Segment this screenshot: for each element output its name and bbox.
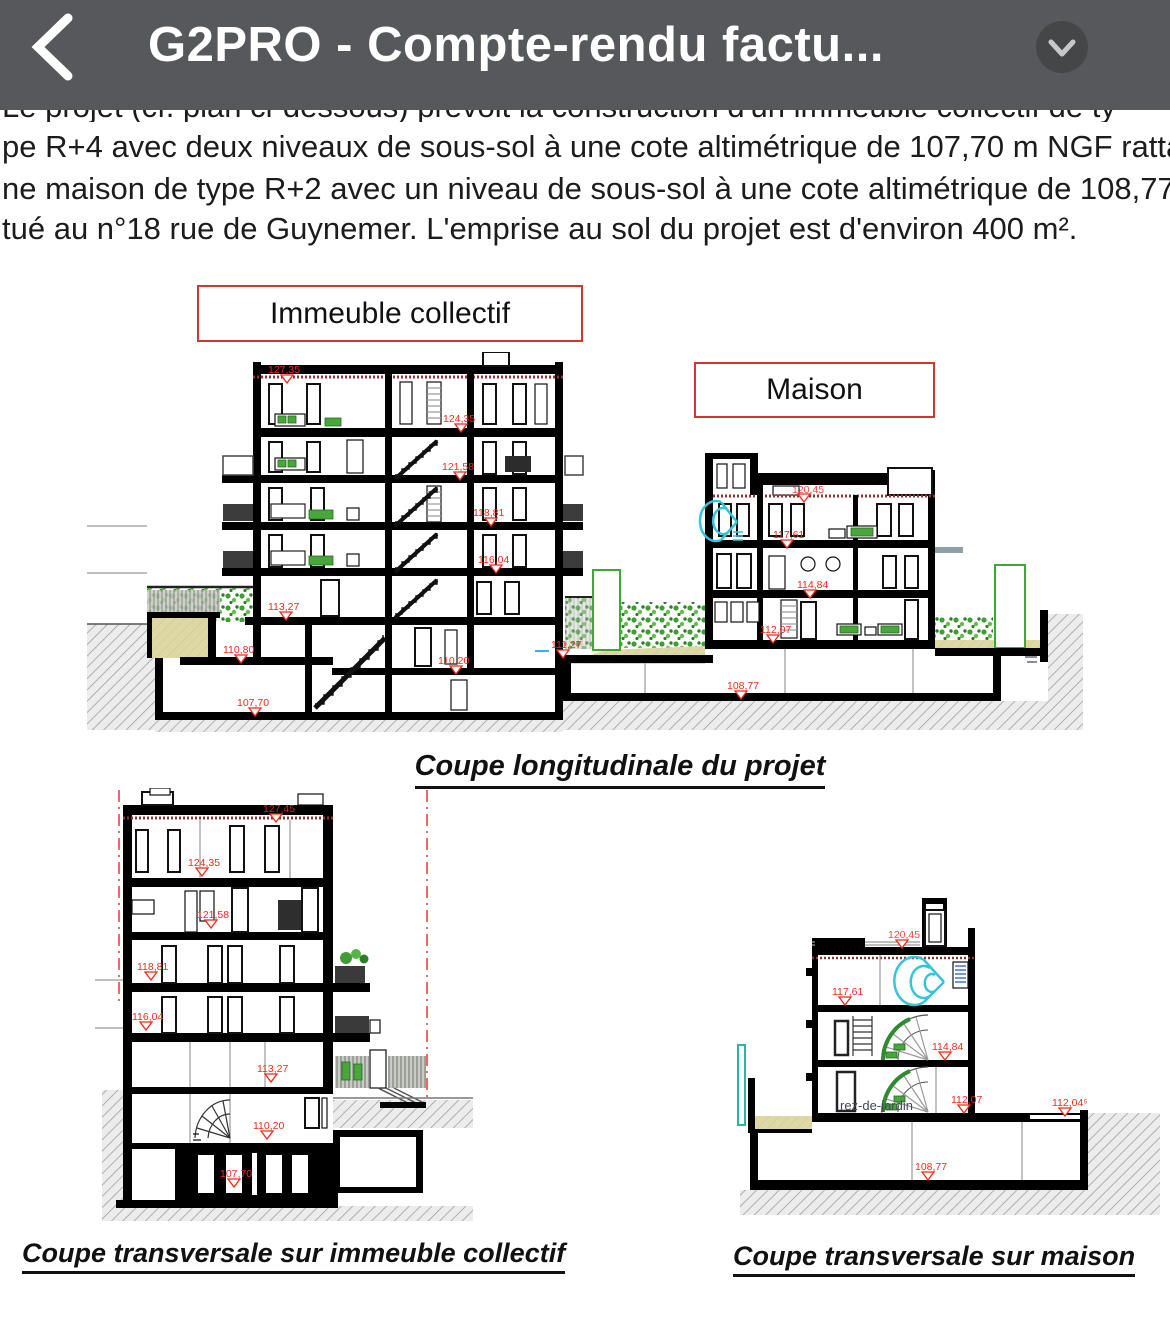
- label-immeuble-text: Immeuble collectif: [270, 297, 510, 331]
- paragraph-line-3: tué au n°18 rue de Guynemer. L'emprise a…: [2, 211, 1170, 247]
- elevation-label: 112,04⁵: [1052, 1097, 1088, 1109]
- document-viewer-screen: G2PRO - Compte-rendu factu... Le projet …: [0, 0, 1170, 1328]
- elevation-label: 117,61: [773, 529, 804, 541]
- elevation-label: 116,04: [132, 1011, 163, 1023]
- tm-spiral-stair-cyan: [894, 957, 944, 1005]
- room-label: rez-de-jardin: [840, 1098, 913, 1113]
- ti-windows: [132, 820, 327, 1143]
- caption-transversale-immeuble: Coupe transversale sur immeuble collecti…: [22, 1238, 565, 1269]
- clipped-paragraph-line: Le projet (cf. plan ci-dessous) prévoit …: [2, 110, 1170, 122]
- elevation-label: 107,70: [237, 697, 269, 709]
- elevation-label: 114,84: [797, 579, 828, 591]
- elevation-label: 121,58: [442, 461, 474, 473]
- longitudinal-section-drawing: 127,35 124,35 121,58 118,81 116,04 113,2…: [85, 352, 1085, 737]
- chevron-down-icon: [1051, 42, 1073, 54]
- elevation-label: 118,81: [473, 507, 504, 519]
- paragraph-line-2: ne maison de type R+2 avec un niveau de …: [2, 171, 1170, 207]
- back-chevron-icon: [38, 18, 68, 76]
- elevation-label: 124,35: [188, 857, 220, 869]
- back-button[interactable]: [22, 12, 86, 82]
- ti-spiral-stair: [193, 1100, 230, 1140]
- expand-button[interactable]: [1036, 21, 1088, 73]
- caption-longitudinale: Coupe longitudinale du projet: [300, 750, 940, 789]
- elevation-label: 127,45: [263, 803, 295, 815]
- elevation-label: 110,20: [438, 655, 469, 667]
- caption-transversale-maison: Coupe transversale sur maison: [733, 1241, 1135, 1272]
- elevation-label: 108,77: [727, 680, 759, 692]
- elevation-label: 127,35: [268, 364, 300, 376]
- elevation-label: 121,58: [197, 909, 229, 921]
- elevation-label: 114,84: [932, 1041, 963, 1053]
- maison-longitudinal: [700, 453, 963, 649]
- elevation-label: 113,27: [268, 601, 299, 613]
- elevation-label: 113,27: [257, 1063, 288, 1075]
- transversal-immeuble-drawing: 127,45 124,35 121,58 118,81 116,04 113,2…: [80, 788, 500, 1233]
- paragraph-line-1: pe R+4 avec deux niveaux de sous-sol à u…: [2, 129, 1170, 165]
- elevation-label: 108,77: [915, 1161, 947, 1173]
- label-box-immeuble: Immeuble collectif: [197, 285, 583, 342]
- elevation-label: 118,81: [137, 961, 168, 973]
- elevation-label: 116,04: [478, 554, 509, 566]
- elevation-label: 124,35: [443, 413, 475, 425]
- top-navigation-bar: G2PRO - Compte-rendu factu...: [0, 0, 1170, 110]
- document-title: G2PRO - Compte-rendu factu...: [148, 17, 1028, 73]
- elevation-label: 120,45: [888, 929, 920, 941]
- elevation-label: 111,27: [551, 639, 582, 651]
- elevation-label: 107,70: [220, 1168, 252, 1180]
- tm-ladder: [853, 1016, 872, 1056]
- elevation-label: 112,07: [951, 1094, 982, 1106]
- elevation-label: 117,61: [832, 986, 863, 998]
- transversal-maison-drawing: 120,45 117,61 114,84 112,07 112,04⁵ 108,…: [720, 898, 1170, 1228]
- elevation-label: 112,07: [760, 624, 791, 636]
- elevation-label: 110,80: [223, 644, 254, 656]
- elevation-label: 110,20: [253, 1120, 284, 1132]
